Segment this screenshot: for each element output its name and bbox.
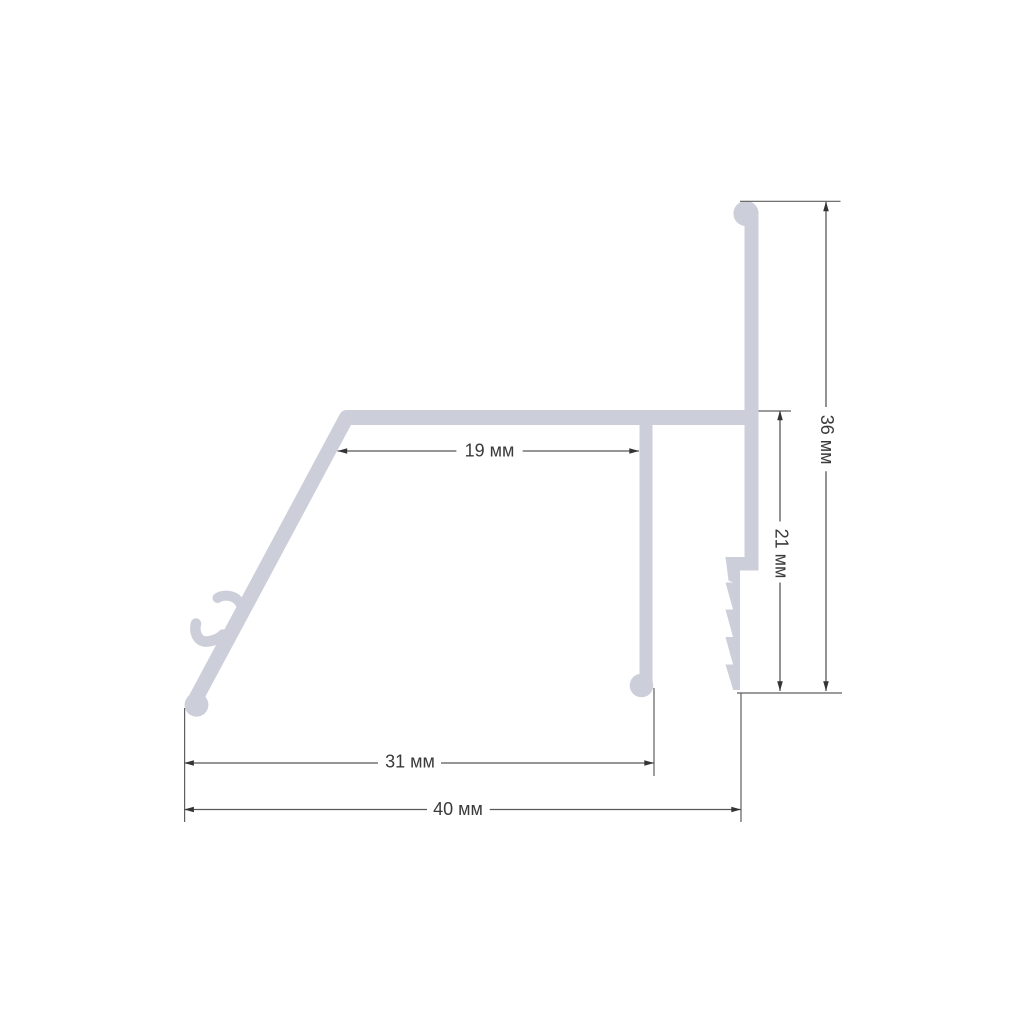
svg-text:36 мм: 36 мм: [817, 415, 837, 465]
svg-text:21 мм: 21 мм: [772, 529, 792, 579]
svg-text:40 мм: 40 мм: [433, 799, 483, 819]
svg-text:19 мм: 19 мм: [465, 441, 515, 461]
svg-text:31 мм: 31 мм: [385, 752, 435, 772]
